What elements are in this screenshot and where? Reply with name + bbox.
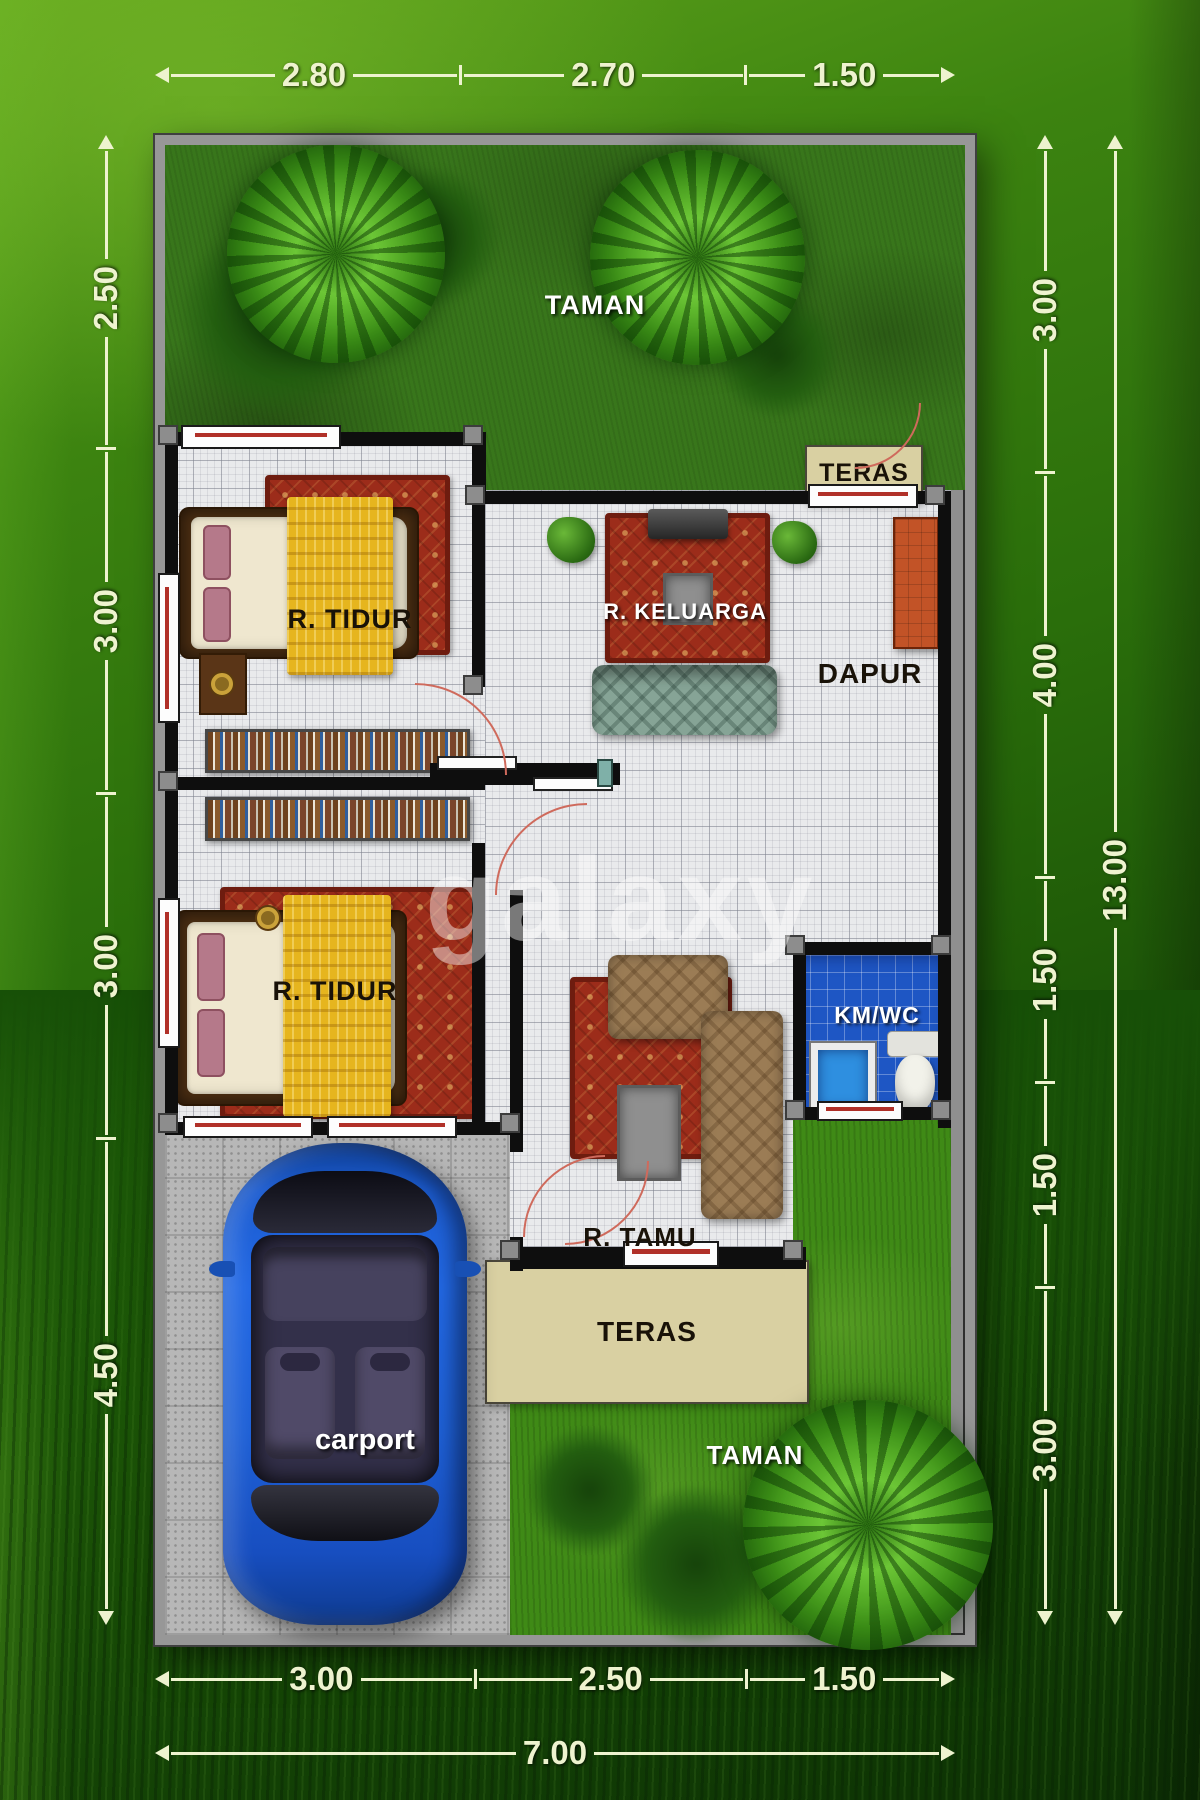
dimension-line: 13.00 bbox=[1102, 135, 1128, 1625]
dimension-label: 2.50 bbox=[87, 261, 125, 335]
dimension-segment: 1.50 bbox=[747, 62, 941, 88]
dimension-segment: 3.00 bbox=[169, 1666, 474, 1692]
dimension-segment: 2.50 bbox=[477, 1666, 745, 1692]
bedroom2-ornament bbox=[257, 907, 279, 929]
guest-room-label: R. TAMU bbox=[545, 1223, 735, 1252]
wall-post bbox=[158, 771, 178, 791]
plant bbox=[772, 521, 817, 564]
wall bbox=[938, 491, 951, 1128]
garden-top-label: TAMAN bbox=[495, 291, 695, 321]
dimension-label: 3.00 bbox=[284, 1660, 358, 1698]
dimension-segment: 13.00 bbox=[1102, 149, 1128, 1611]
kitchen-label: DAPUR bbox=[795, 659, 945, 690]
dimension-label: 3.00 bbox=[87, 584, 125, 658]
dimension-line: 3.002.501.50 bbox=[155, 1666, 955, 1692]
dimension-label: 1.50 bbox=[1026, 943, 1064, 1017]
dimension-segment: 2.80 bbox=[169, 62, 459, 88]
tree bbox=[590, 150, 805, 365]
dimension-label: 4.50 bbox=[87, 1338, 125, 1412]
window-sill bbox=[165, 587, 169, 710]
window-sill bbox=[818, 492, 907, 496]
dimension-label: 1.50 bbox=[807, 1660, 881, 1698]
dimension-line: 2.503.003.004.50 bbox=[93, 135, 119, 1625]
dimension-segment: 1.50 bbox=[1032, 879, 1058, 1081]
car-windshield bbox=[251, 1485, 439, 1541]
dimension-arrow bbox=[155, 1745, 169, 1761]
car-rear-window bbox=[253, 1171, 437, 1233]
window bbox=[817, 1101, 903, 1121]
car bbox=[223, 1143, 467, 1625]
dimension-label: 2.50 bbox=[574, 1660, 648, 1698]
wall bbox=[472, 432, 485, 687]
car-rear-seat bbox=[263, 1247, 427, 1321]
bedroom1-label: R. TIDUR bbox=[225, 605, 475, 635]
wall-post bbox=[785, 1100, 805, 1120]
wall-post bbox=[931, 1100, 951, 1120]
wall-post bbox=[465, 485, 485, 505]
dimension-label: 1.50 bbox=[807, 56, 881, 94]
dimension-arrow bbox=[941, 1745, 955, 1761]
dimension-line: 3.004.001.501.503.00 bbox=[1032, 135, 1058, 1625]
dimension-arrow bbox=[1037, 1611, 1053, 1625]
tree bbox=[743, 1400, 993, 1650]
window-sill bbox=[339, 1123, 445, 1127]
dimension-label: 7.00 bbox=[518, 1734, 592, 1772]
window bbox=[158, 898, 180, 1048]
dimension-segment: 2.50 bbox=[93, 149, 119, 447]
dimension-segment: 3.00 bbox=[1032, 1289, 1058, 1611]
dimension-label: 1.50 bbox=[1026, 1148, 1064, 1222]
window-sill bbox=[195, 433, 326, 437]
dimension-segment: 2.70 bbox=[462, 62, 745, 88]
wall-post bbox=[158, 425, 178, 445]
family-room-sofa bbox=[592, 665, 777, 735]
wall bbox=[793, 942, 806, 1120]
dimension-segment: 3.00 bbox=[1032, 149, 1058, 471]
plant bbox=[547, 517, 595, 563]
dimension-segment: 4.00 bbox=[1032, 474, 1058, 876]
window-sill bbox=[195, 1123, 301, 1127]
carport-label: carport bbox=[275, 1425, 455, 1457]
dimension-arrow bbox=[941, 67, 955, 83]
dimension-line: 2.802.701.50 bbox=[155, 62, 955, 88]
dimension-label: 4.00 bbox=[1026, 638, 1064, 712]
window bbox=[181, 425, 341, 449]
dimension-label: 2.70 bbox=[566, 56, 640, 94]
dimension-segment: 3.00 bbox=[93, 450, 119, 792]
bedroom2-pillow bbox=[197, 1009, 225, 1077]
kmwc-label: KM/WC bbox=[803, 1003, 951, 1028]
terrace-bottom-label: TERAS bbox=[597, 1317, 697, 1348]
dimension-segment: 7.00 bbox=[169, 1740, 941, 1766]
wall-post bbox=[463, 675, 483, 695]
garden-bottom-label: TAMAN bbox=[655, 1441, 855, 1470]
tree bbox=[227, 145, 445, 363]
window-sill bbox=[826, 1107, 895, 1111]
window bbox=[158, 573, 180, 723]
dimension-label: 3.00 bbox=[87, 929, 125, 1003]
bedroom1-ornament bbox=[211, 673, 233, 695]
wall-post bbox=[783, 1240, 803, 1260]
car-mirror bbox=[455, 1261, 481, 1277]
dimension-arrow bbox=[155, 1671, 169, 1687]
dimension-label: 2.80 bbox=[277, 56, 351, 94]
dimension-segment: 4.50 bbox=[93, 1140, 119, 1611]
window-sill bbox=[165, 912, 169, 1035]
sliding-door-cap bbox=[597, 759, 613, 787]
dimension-arrow bbox=[98, 135, 114, 149]
bedroom1-pillow bbox=[203, 525, 231, 580]
wall-post bbox=[931, 935, 951, 955]
toilet-tank bbox=[887, 1031, 945, 1057]
watermark: galaxy bbox=[425, 832, 816, 968]
dimension-segment: 1.50 bbox=[748, 1666, 942, 1692]
window bbox=[327, 1116, 457, 1138]
window bbox=[808, 484, 918, 508]
tv bbox=[648, 509, 728, 539]
car-mirror bbox=[209, 1261, 235, 1277]
wall-post bbox=[500, 1240, 520, 1260]
dimension-label: 13.00 bbox=[1096, 834, 1134, 927]
dimension-arrow bbox=[98, 1611, 114, 1625]
guest-sofa bbox=[701, 1011, 783, 1219]
wall-post bbox=[500, 1113, 520, 1133]
wall-post bbox=[463, 425, 483, 445]
dimension-segment: 1.50 bbox=[1032, 1084, 1058, 1286]
dimension-arrow bbox=[941, 1671, 955, 1687]
bedroom1-blanket bbox=[287, 497, 393, 675]
wall-post bbox=[158, 1113, 178, 1133]
dimension-arrow bbox=[1107, 135, 1123, 149]
dimension-arrow bbox=[1107, 1611, 1123, 1625]
dimension-segment: 3.00 bbox=[93, 795, 119, 1137]
dimension-label: 3.00 bbox=[1026, 1413, 1064, 1487]
dimension-arrow bbox=[1037, 135, 1053, 149]
window bbox=[183, 1116, 313, 1138]
family-room-label: R. KELUARGA bbox=[555, 600, 815, 624]
wall bbox=[793, 942, 951, 955]
kitchen-counter bbox=[893, 517, 939, 649]
dimension-label: 3.00 bbox=[1026, 273, 1064, 347]
dimension-line: 7.00 bbox=[155, 1740, 955, 1766]
bedroom2-label: R. TIDUR bbox=[210, 977, 460, 1007]
dimension-arrow bbox=[155, 67, 169, 83]
wall-post bbox=[925, 485, 945, 505]
terrace-bottom: TERAS bbox=[485, 1260, 809, 1404]
